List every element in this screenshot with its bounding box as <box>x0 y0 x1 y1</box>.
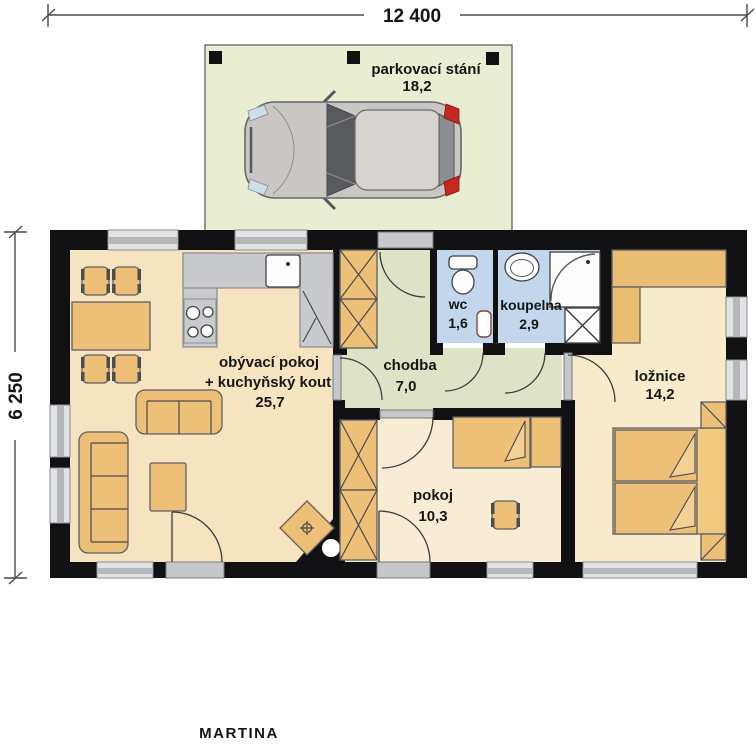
hall-wardrobe <box>340 250 377 348</box>
parking-post <box>347 51 360 64</box>
garden-door-threshold <box>377 562 430 578</box>
living-hall-door-leaf <box>333 355 341 400</box>
room-label-wc: wc <box>448 296 468 312</box>
dimension-line-top: 12 400 <box>42 4 754 27</box>
kids-room-door-threshold <box>380 410 433 418</box>
dining-chair <box>112 355 141 383</box>
radiator-icon <box>477 311 491 337</box>
room-area-kids-room: 10,3 <box>418 508 447 525</box>
kitchen-sink-icon <box>266 255 300 287</box>
terrace-door-threshold <box>166 562 224 578</box>
window <box>97 562 153 578</box>
interior-wall <box>561 400 575 562</box>
window <box>50 405 70 457</box>
dimension-width-label: 12 400 <box>383 6 441 27</box>
bedroom-door-leaf <box>564 353 572 400</box>
kids-room-wardrobe <box>340 420 377 560</box>
interior-wall <box>600 250 612 343</box>
exterior-wall-right <box>726 230 747 578</box>
washing-machine-icon <box>565 308 600 343</box>
interior-wall <box>430 343 443 355</box>
coffee-table <box>150 463 186 511</box>
interior-wall <box>483 343 505 355</box>
interior-wall <box>545 343 612 355</box>
room-area-bathroom: 2,9 <box>519 316 539 332</box>
entrance-door-threshold <box>378 232 433 248</box>
interior-wall <box>333 408 380 420</box>
dimension-height-label: 6 250 <box>6 372 27 420</box>
washbasin-icon <box>505 253 539 281</box>
floor-plan-drawing: 12 400 6 250 p <box>0 0 756 746</box>
room-label-bathroom: koupelna <box>500 297 562 313</box>
room-label-living-2: + kuchyňský kout <box>205 374 331 391</box>
room-area-hall: 7,0 <box>396 378 417 395</box>
plan-title: MARTINA <box>199 725 279 742</box>
window <box>726 360 747 400</box>
room-label-living-1: obývací pokoj <box>219 354 319 371</box>
room-label-parking: parkovací stání <box>371 61 481 78</box>
single-bed <box>453 417 530 468</box>
dimension-line-left: 6 250 <box>4 226 27 584</box>
room-label-hall: chodba <box>383 357 437 374</box>
room-label-kids-room: pokoj <box>413 487 453 504</box>
dining-table <box>72 302 150 350</box>
hall-floor <box>333 348 562 410</box>
interior-wall <box>430 250 437 343</box>
nightstand <box>701 534 726 560</box>
exterior-wall-left <box>50 230 70 578</box>
room-area-wc: 1,6 <box>448 315 468 331</box>
dining-chair <box>81 267 110 295</box>
car-icon <box>245 91 461 209</box>
floor-plan-page: 12 400 6 250 p <box>0 0 756 746</box>
window <box>50 468 70 523</box>
window <box>235 230 307 250</box>
sofa-small <box>136 390 222 434</box>
room-area-bedroom: 14,2 <box>645 386 674 403</box>
desk-chair <box>491 501 520 529</box>
sofa-large <box>79 432 128 553</box>
room-area-living: 25,7 <box>255 394 284 411</box>
window <box>583 562 697 578</box>
interior-wall <box>493 250 498 343</box>
chimney-icon <box>322 539 340 557</box>
window <box>487 562 533 578</box>
dining-chair <box>112 267 141 295</box>
room-label-bedroom: ložnice <box>635 368 686 385</box>
window <box>108 230 178 250</box>
double-bed <box>613 428 726 534</box>
room-area-parking: 18,2 <box>402 78 431 95</box>
parking-area: parkovací stání 18,2 <box>205 45 512 232</box>
desk <box>531 417 561 467</box>
window <box>726 297 747 337</box>
hall-floor <box>375 250 433 355</box>
parking-post <box>486 52 499 65</box>
parking-post <box>209 51 222 64</box>
dining-chair <box>81 355 110 383</box>
nightstand <box>701 402 726 428</box>
